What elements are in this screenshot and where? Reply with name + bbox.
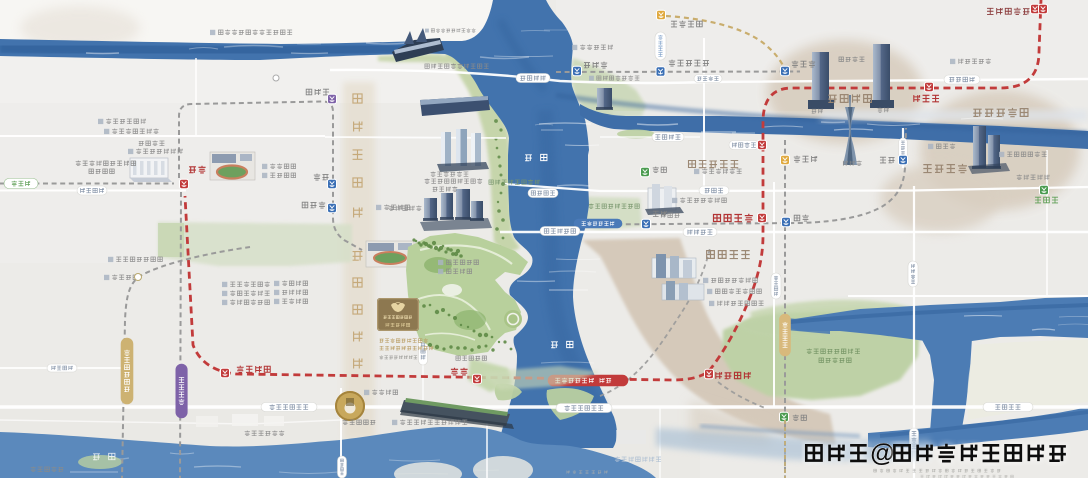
svg-text:@: @ (870, 439, 894, 467)
